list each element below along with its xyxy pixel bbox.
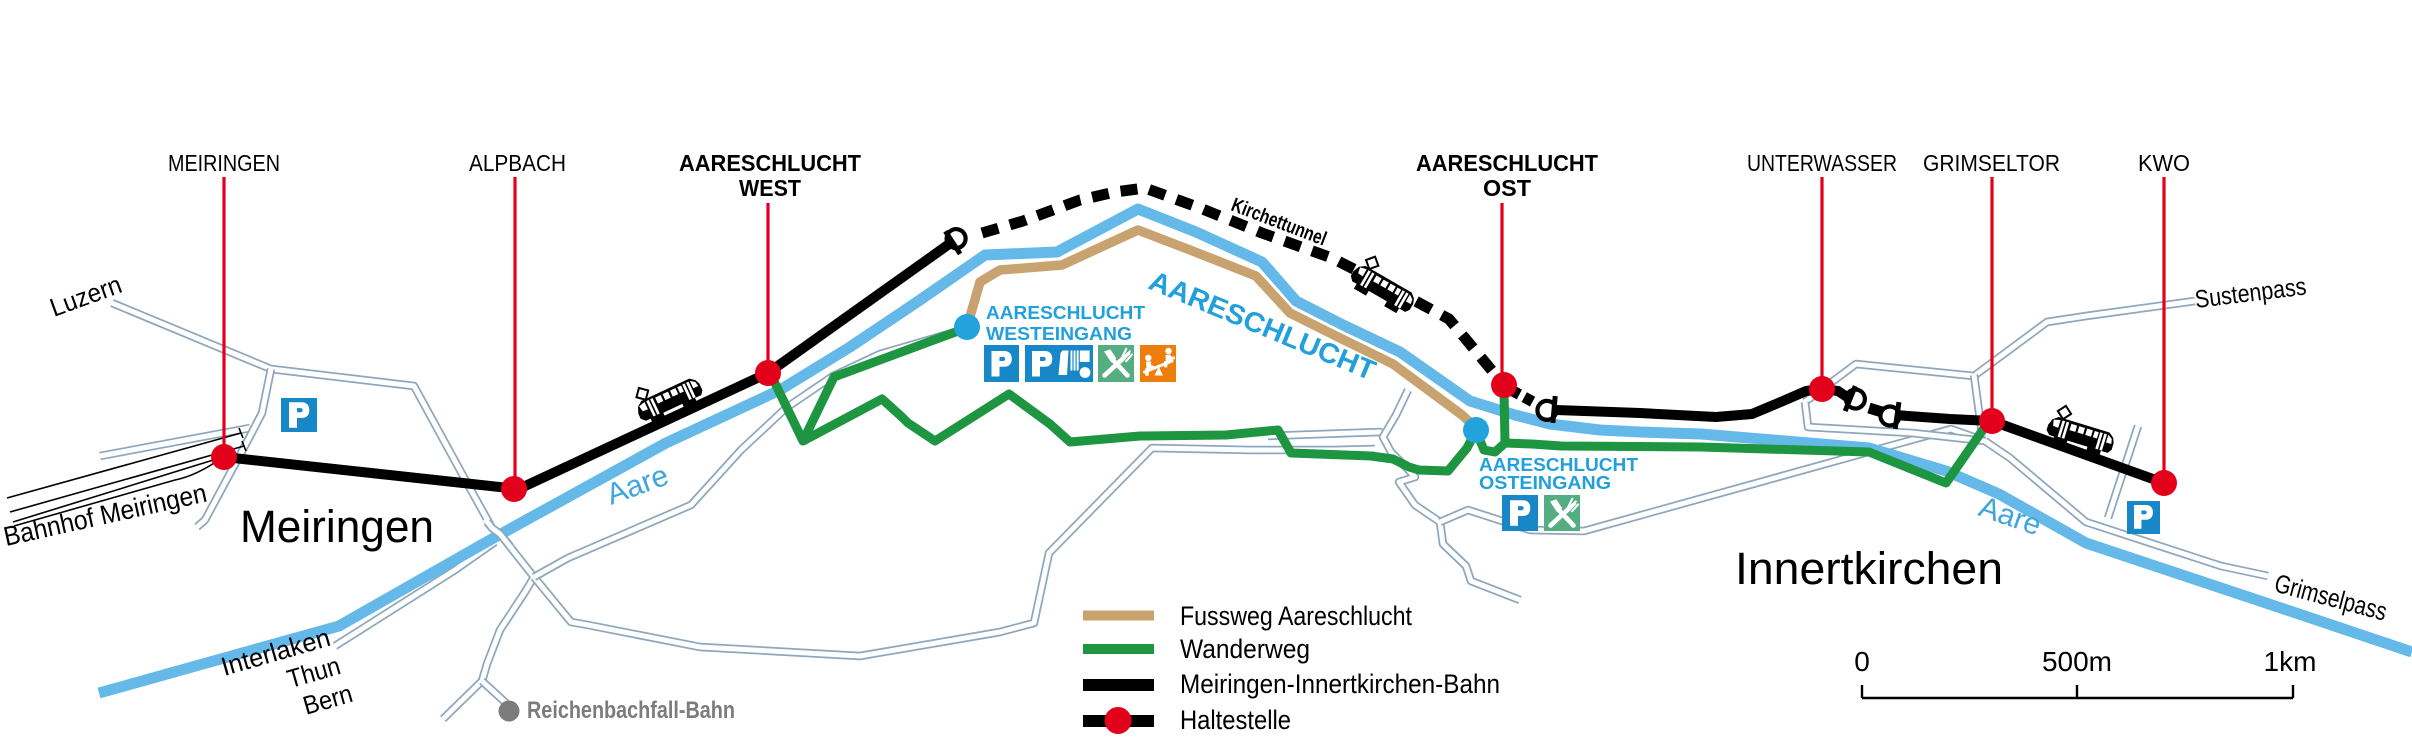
svg-text:500m: 500m <box>2042 646 2112 677</box>
svg-text:MEIRINGEN: MEIRINGEN <box>168 150 280 176</box>
svg-text:Meiringen-Innertkirchen-Bahn: Meiringen-Innertkirchen-Bahn <box>1180 669 1500 699</box>
svg-text:AARESCHLUCHT: AARESCHLUCHT <box>679 150 861 176</box>
svg-text:Innertkirchen: Innertkirchen <box>1735 543 2003 594</box>
svg-text:Reichenbachfall-Bahn: Reichenbachfall-Bahn <box>527 697 735 724</box>
svg-text:KWO: KWO <box>2138 150 2190 176</box>
svg-text:AARESCHLUCHT: AARESCHLUCHT <box>1479 455 1638 475</box>
svg-text:ALPBACH: ALPBACH <box>469 150 566 176</box>
svg-text:Fussweg Aareschlucht: Fussweg Aareschlucht <box>1180 601 1412 631</box>
svg-text:1km: 1km <box>2264 646 2317 677</box>
svg-text:Wanderweg: Wanderweg <box>1180 634 1310 664</box>
svg-text:Meiringen: Meiringen <box>240 501 434 552</box>
svg-text:WESTEINGANG: WESTEINGANG <box>986 324 1132 344</box>
svg-text:AARESCHLUCHT: AARESCHLUCHT <box>1416 150 1598 176</box>
svg-text:Haltestelle: Haltestelle <box>1180 705 1291 735</box>
svg-text:AARESCHLUCHT: AARESCHLUCHT <box>986 303 1145 323</box>
svg-text:GRIMSELTOR: GRIMSELTOR <box>1923 150 2060 176</box>
svg-text:OSTEINGANG: OSTEINGANG <box>1479 473 1611 493</box>
svg-text:0: 0 <box>1854 646 1870 677</box>
svg-text:WEST: WEST <box>739 175 801 201</box>
svg-text:OST: OST <box>1483 175 1531 201</box>
svg-text:UNTERWASSER: UNTERWASSER <box>1747 150 1897 176</box>
